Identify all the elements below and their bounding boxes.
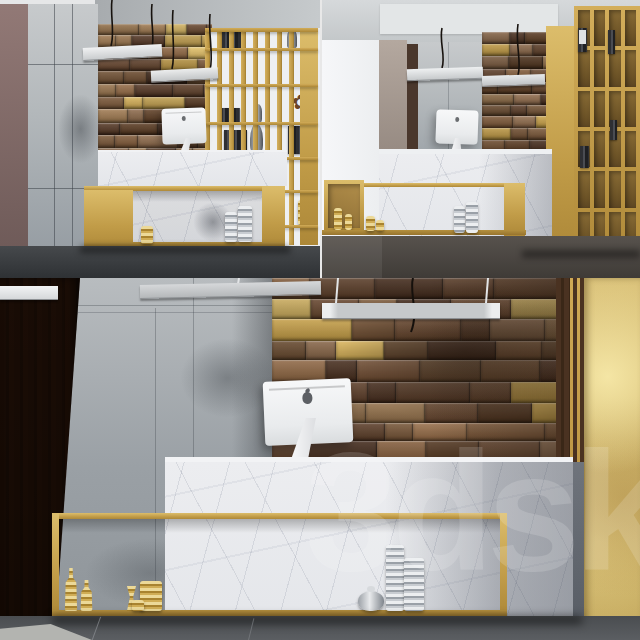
floor [0, 246, 320, 278]
wood-block [98, 97, 124, 109]
silver-canister-stack [386, 545, 404, 611]
shelf-cell [594, 91, 606, 127]
wood-block [385, 423, 413, 441]
silver-canister-stack [404, 558, 424, 611]
console-frame-right [500, 513, 507, 617]
wood-block [98, 123, 120, 135]
pendant-light-bar [482, 74, 545, 87]
render-canvas: ✿ [0, 0, 640, 640]
wood-block [511, 105, 527, 116]
silver-canister [466, 202, 478, 233]
apple-logo-icon [302, 392, 313, 404]
wood-block [357, 360, 420, 382]
shelf-cell [578, 91, 590, 127]
wood-block [467, 423, 545, 441]
panel-top-left: ✿ [0, 0, 320, 278]
silver-canister [225, 212, 237, 242]
wood-block [128, 109, 144, 123]
floor-reflection [322, 236, 382, 278]
wood-block [532, 403, 556, 423]
gold-bottle [334, 208, 342, 230]
wood-block [413, 423, 467, 441]
wood-block [98, 109, 128, 123]
desk-shadow [80, 246, 290, 253]
light-floor-tile [0, 624, 92, 640]
wood-block [482, 116, 513, 128]
console-right-slab [504, 183, 525, 236]
silver-canister [454, 206, 465, 233]
console-bottom-bar [322, 230, 526, 235]
silver-canister [238, 206, 252, 242]
wood-block [511, 382, 556, 403]
pendant-light-bar [0, 286, 58, 300]
frame-shadow [59, 519, 500, 533]
wood-block [115, 135, 138, 148]
imac-computer [161, 107, 206, 145]
wall-box-shelf [324, 180, 364, 232]
shelf-board [205, 122, 318, 125]
gold-canister [141, 226, 153, 244]
wall-box-interior [328, 184, 360, 228]
wood-block [420, 360, 481, 382]
niche-shadow [133, 190, 262, 202]
desk-return-shadow [573, 462, 584, 630]
panel-divider [320, 0, 322, 278]
gold-canister [376, 220, 384, 231]
shelf-cell [625, 91, 637, 127]
wood-block [481, 360, 540, 382]
wood-block [482, 128, 511, 140]
desk-shadow [52, 616, 582, 624]
floor [0, 616, 640, 640]
wood-block [478, 403, 532, 423]
wood-block [352, 423, 385, 441]
silver-jar-lid [367, 586, 375, 592]
wood-block [120, 123, 158, 135]
console-left-slab [84, 190, 133, 250]
shelf-cell [625, 171, 637, 207]
shelf-shadow [522, 250, 640, 258]
panel-top-right [322, 0, 640, 278]
marble-counter [98, 152, 287, 186]
books [610, 120, 617, 140]
apple-logo-icon [455, 117, 459, 122]
wood-block [511, 128, 528, 140]
gold-canister [366, 216, 375, 231]
console-top-bar [360, 183, 524, 187]
concrete-stain [58, 94, 103, 164]
panel-bottom [0, 278, 640, 640]
console-right-slab [262, 186, 285, 248]
shelf-cell [609, 171, 621, 207]
wood-block [425, 403, 478, 423]
shelf-cell [625, 131, 637, 167]
shelf-cell [578, 171, 590, 207]
silver-jar [358, 591, 384, 611]
wood-block [540, 360, 556, 382]
wood-block [482, 105, 511, 116]
wood-block [396, 382, 470, 403]
gold-leaf-column [584, 278, 640, 630]
imac-vent [166, 111, 202, 113]
books [580, 146, 589, 168]
wood-block [514, 94, 541, 105]
wood-block [513, 116, 536, 128]
shelf-cell [594, 171, 606, 207]
gold-bottle [345, 214, 352, 230]
gold-canister [132, 600, 144, 611]
apple-logo-icon [182, 116, 186, 121]
console-frame-left [52, 513, 59, 617]
wood-block [366, 403, 425, 423]
wood-block [98, 135, 115, 148]
wood-block [368, 382, 396, 403]
pendant-light-bar [322, 303, 500, 319]
wood-block [545, 423, 556, 441]
wood-block [470, 382, 511, 403]
shelf-cell [594, 131, 606, 167]
floor [322, 236, 640, 278]
wood-block [124, 97, 143, 109]
wood-block [482, 94, 514, 105]
